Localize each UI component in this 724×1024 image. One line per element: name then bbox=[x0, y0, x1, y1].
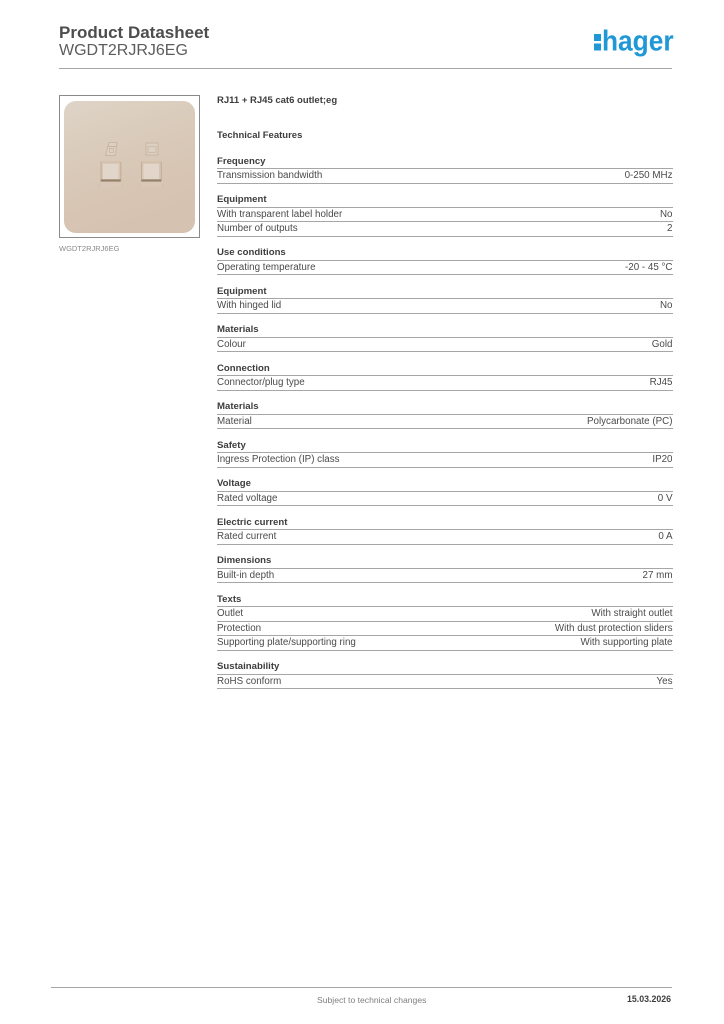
svg-text:hager: hager bbox=[602, 26, 674, 57]
